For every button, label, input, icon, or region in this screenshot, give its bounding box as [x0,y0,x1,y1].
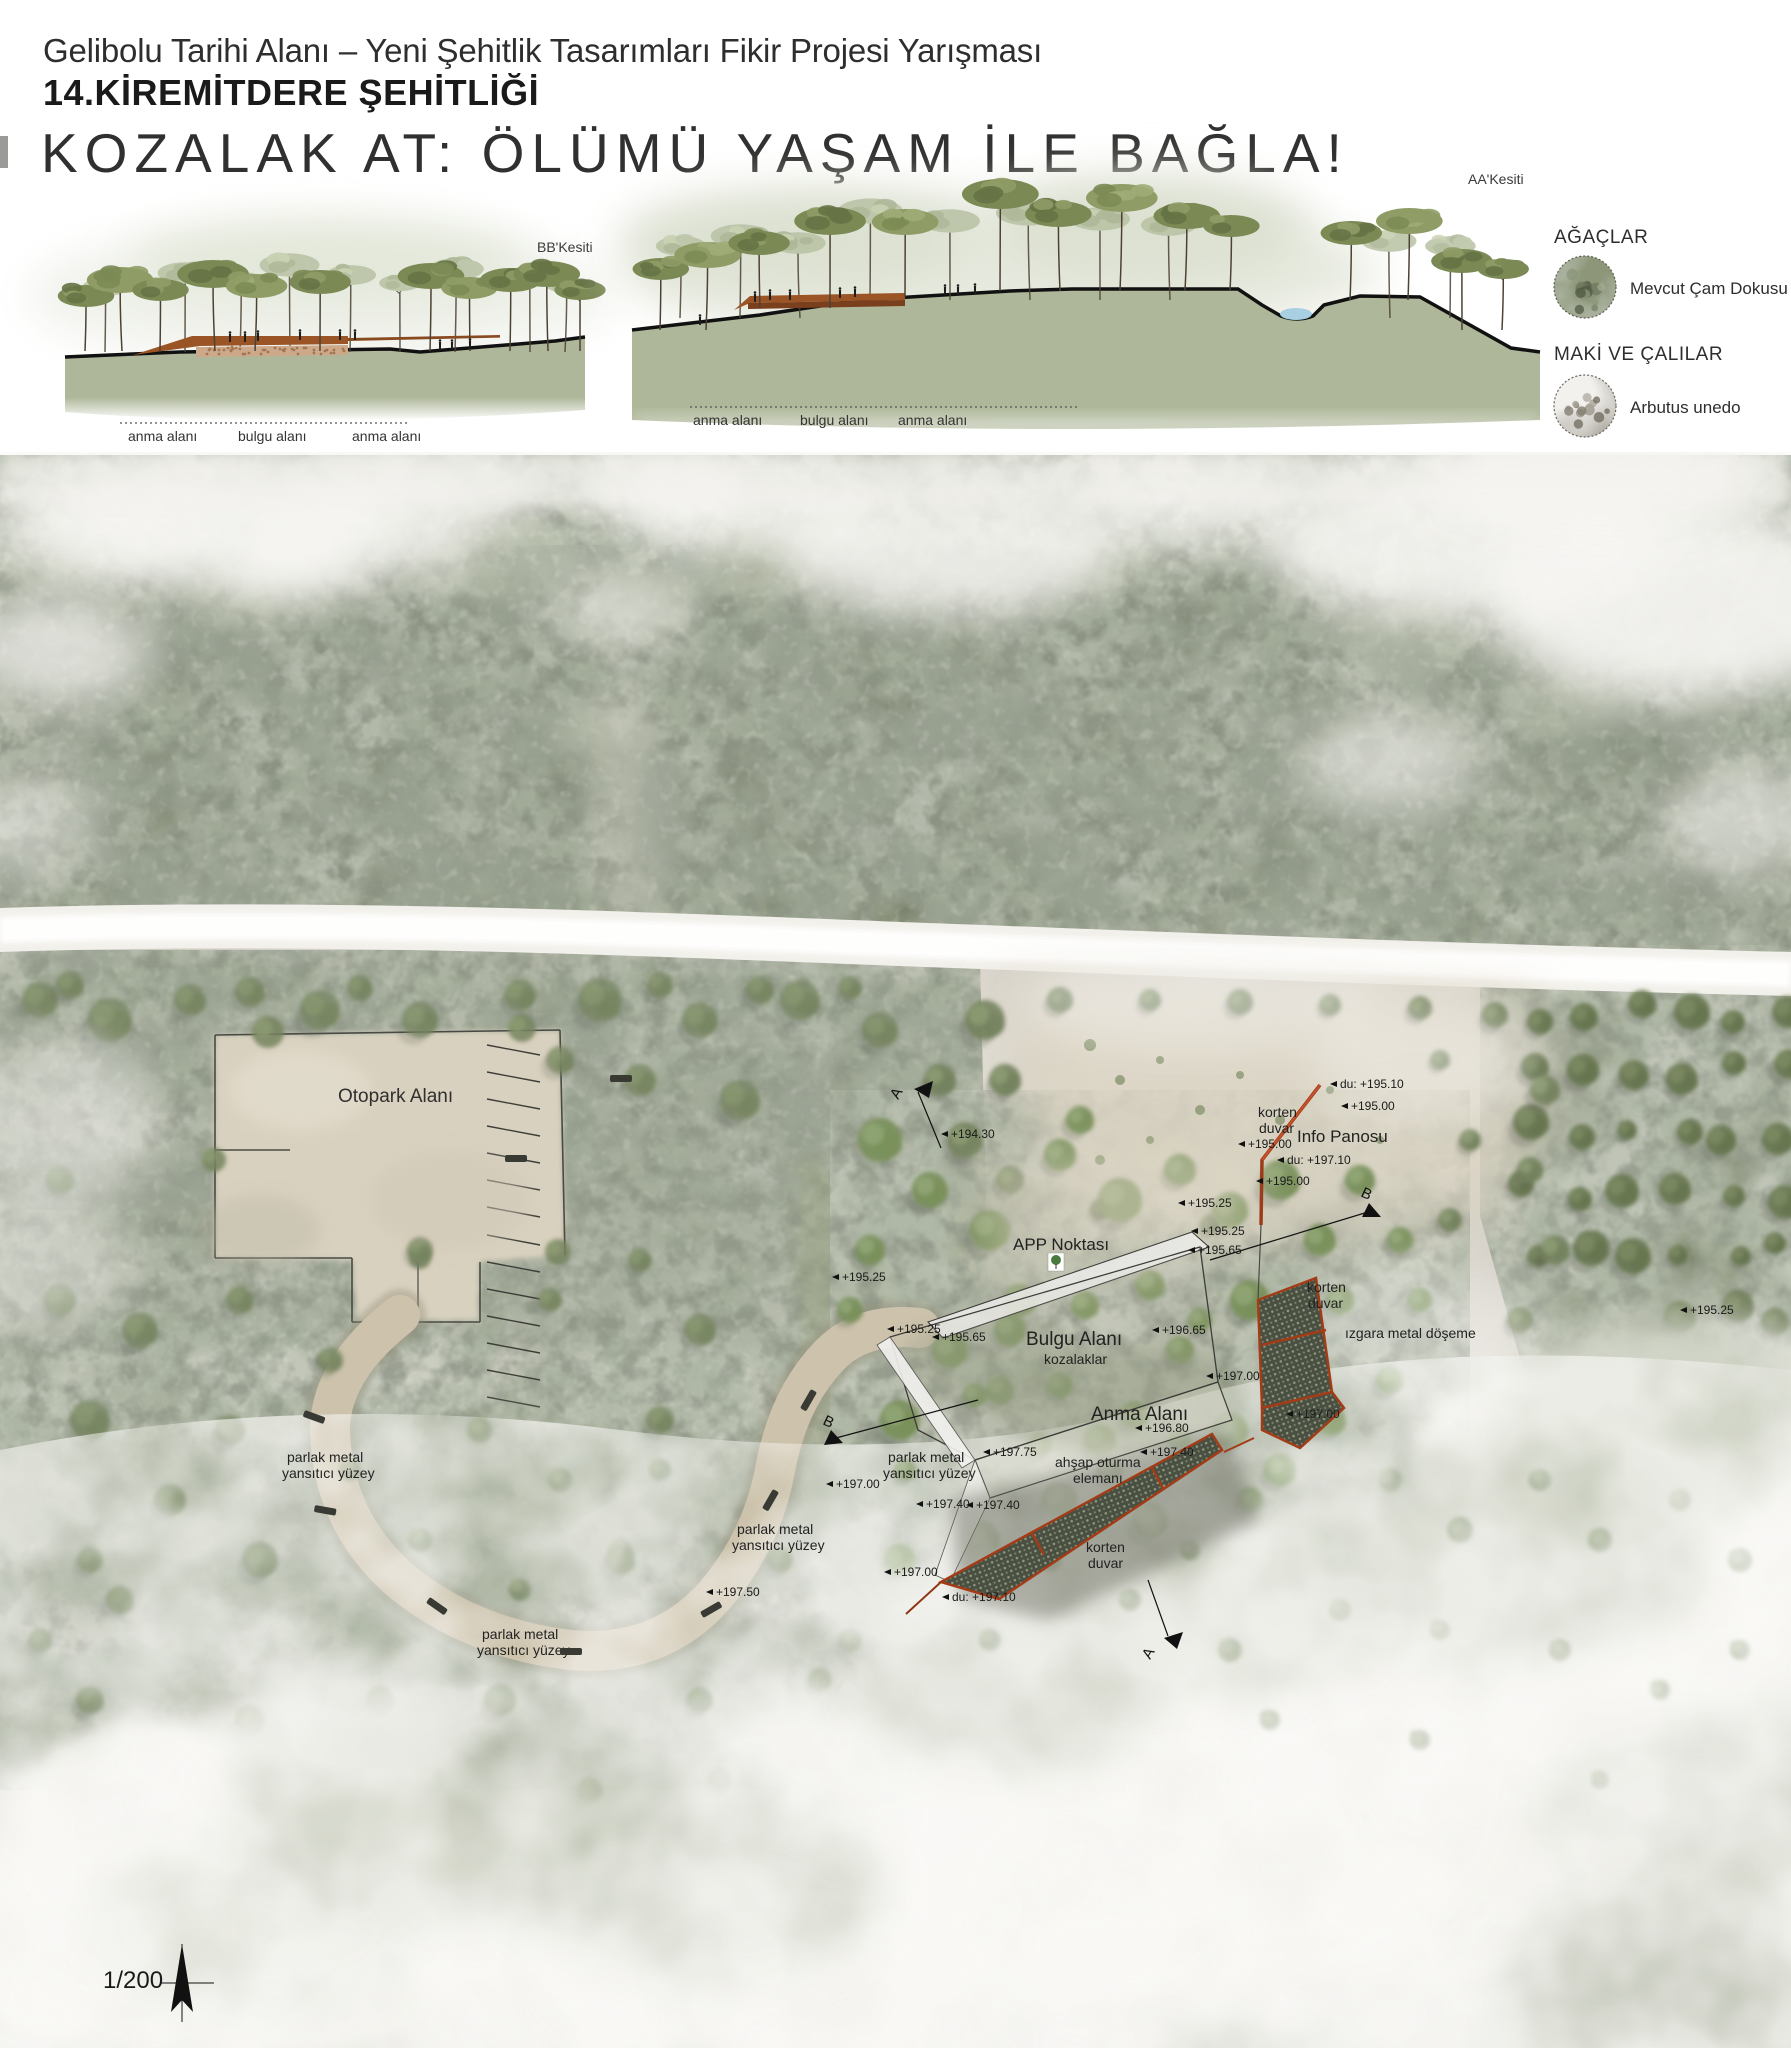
svg-text:yansıtıcı yüzey: yansıtıcı yüzey [477,1642,570,1658]
svg-text:Gelibolu Tarihi Alanı – Yeni Ş: Gelibolu Tarihi Alanı – Yeni Şehitlik Ta… [43,32,1042,69]
svg-text:+195.00: +195.00 [1248,1137,1292,1151]
svg-text:elemanı: elemanı [1073,1470,1123,1486]
svg-text:ahşap oturma: ahşap oturma [1055,1454,1141,1470]
svg-text:+197.00: +197.00 [1216,1369,1260,1383]
svg-text:yansıtıcı yüzey: yansıtıcı yüzey [883,1465,976,1481]
svg-text:du: +197.10: du: +197.10 [952,1590,1016,1604]
svg-text:+196.65: +196.65 [1162,1323,1206,1337]
svg-text:14.KİREMİTDERE ŞEHİTLİĞİ: 14.KİREMİTDERE ŞEHİTLİĞİ [43,72,539,113]
svg-text:Arbutus unedo: Arbutus unedo [1630,398,1741,417]
svg-text:+197.40: +197.40 [926,1497,970,1511]
svg-text:+197.75: +197.75 [993,1445,1037,1459]
svg-text:korten: korten [1307,1279,1346,1295]
svg-text:+195.25: +195.25 [897,1322,941,1336]
svg-text:+195.25: +195.25 [1201,1224,1245,1238]
svg-text:+195.25: +195.25 [1188,1196,1232,1210]
svg-text:MAKİ VE ÇALILAR: MAKİ VE ÇALILAR [1554,344,1723,365]
svg-text:KOZALAK AT: ÖLÜMÜ YAŞAM İLE BA: KOZALAK AT: ÖLÜMÜ YAŞAM İLE BAĞLA! [41,122,1349,184]
svg-text:parlak metal: parlak metal [737,1521,813,1537]
svg-text:APP Noktası: APP Noktası [1013,1235,1109,1254]
svg-text:+195.25: +195.25 [842,1270,886,1284]
svg-text:korten: korten [1258,1104,1297,1120]
svg-text:ızgara metal döşeme: ızgara metal döşeme [1345,1325,1476,1341]
svg-text:+197.00: +197.00 [1296,1407,1340,1421]
svg-text:Info Panosu: Info Panosu [1297,1127,1388,1146]
svg-text:+195.65: +195.65 [942,1330,986,1344]
svg-text:+197.50: +197.50 [716,1585,760,1599]
svg-text:du: +197.10: du: +197.10 [1287,1153,1351,1167]
svg-text:anma alanı: anma alanı [693,412,762,428]
svg-text:Anma Alanı: Anma Alanı [1091,1404,1188,1425]
svg-text:AAʹKesiti: AAʹKesiti [1468,171,1524,187]
svg-text:Mevcut Çam Dokusu: Mevcut Çam Dokusu [1630,279,1788,298]
svg-text:+197.40: +197.40 [976,1498,1020,1512]
svg-text:bulgu alanı: bulgu alanı [238,428,307,444]
svg-text:yansıtıcı yüzey: yansıtıcı yüzey [282,1465,375,1481]
svg-text:duvar: duvar [1308,1295,1343,1311]
svg-text:+194.30: +194.30 [951,1127,995,1141]
svg-text:duvar: duvar [1259,1120,1294,1136]
svg-text:bulgu alanı: bulgu alanı [800,412,869,428]
svg-text:Bulgu Alanı: Bulgu Alanı [1026,1329,1122,1350]
svg-text:+195.00: +195.00 [1266,1174,1310,1188]
svg-text:parlak metal: parlak metal [888,1449,964,1465]
svg-text:kozalaklar: kozalaklar [1044,1351,1107,1367]
svg-text:parlak metal: parlak metal [482,1626,558,1642]
svg-text:+197.00: +197.00 [894,1565,938,1579]
svg-text:parlak metal: parlak metal [287,1449,363,1465]
svg-text:Otopark Alanı: Otopark Alanı [338,1086,453,1107]
svg-text:anma alanı: anma alanı [352,428,421,444]
svg-text:+195.65: +195.65 [1198,1243,1242,1257]
svg-text:+195.00: +195.00 [1351,1099,1395,1113]
svg-text:+197.00: +197.00 [836,1477,880,1491]
svg-text:1/200: 1/200 [103,1967,163,1994]
svg-text:AĞAÇLAR: AĞAÇLAR [1554,226,1648,248]
svg-text:du: +195.10: du: +195.10 [1340,1077,1404,1091]
svg-text:anma alanı: anma alanı [128,428,197,444]
svg-text:duvar: duvar [1088,1555,1123,1571]
svg-text:korten: korten [1086,1539,1125,1555]
svg-text:+195.25: +195.25 [1690,1303,1734,1317]
svg-text:anma alanı: anma alanı [898,412,967,428]
svg-text:yansıtıcı yüzey: yansıtıcı yüzey [732,1537,825,1553]
svg-text:BBʹKesiti: BBʹKesiti [537,239,593,255]
svg-text:+197.40: +197.40 [1150,1445,1194,1459]
